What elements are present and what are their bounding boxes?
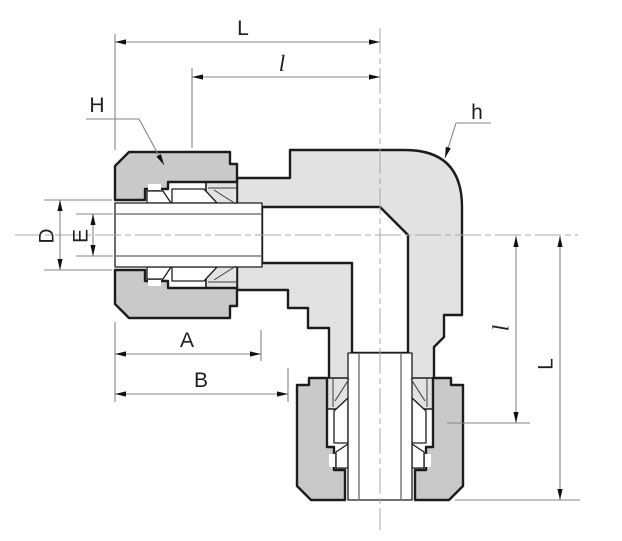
dimension-L-right: L <box>455 236 580 500</box>
arrowhead-bottom <box>90 245 95 256</box>
dimension-A-bottom: A <box>115 322 261 402</box>
dimension-label-l-right: l <box>489 325 514 331</box>
dimension-L-top: L <box>115 17 380 150</box>
arrowhead-bottom <box>57 259 62 270</box>
arrowhead-top <box>557 236 562 247</box>
dimension-label-L-top: L <box>237 17 249 40</box>
arrowhead-left <box>115 39 126 44</box>
dimension-B-bottom: B <box>115 368 288 402</box>
arrowhead-left <box>115 351 126 356</box>
drawing-canvas: L l H h D E <box>0 0 622 541</box>
elbow-fitting-drawing: L l H h D E <box>0 0 622 541</box>
arrowhead-left <box>115 391 126 396</box>
arrowhead-top <box>513 236 518 247</box>
dimension-l-top: l <box>192 51 380 148</box>
dimension-label-B: B <box>194 369 208 392</box>
arrowhead-left <box>192 74 203 79</box>
arrowhead-right <box>369 39 380 44</box>
arrowhead <box>445 147 451 158</box>
arrowhead-bottom <box>513 412 518 423</box>
arrowhead-bottom <box>557 489 562 500</box>
dimension-label-l-top: l <box>279 51 285 76</box>
arrowhead-right <box>369 74 380 79</box>
dimension-label-D: D <box>36 228 59 243</box>
leader-label-H: H <box>89 94 104 117</box>
arrowhead-top <box>90 214 95 225</box>
arrowhead-right <box>250 351 261 356</box>
dimension-label-A: A <box>180 329 194 352</box>
arrowhead-top <box>57 200 62 211</box>
leader-line <box>445 123 491 158</box>
leader-label-h: h <box>471 101 483 124</box>
arrowhead-right <box>277 391 288 396</box>
leader-h: h <box>445 101 491 158</box>
dimension-label-L-right: L <box>535 358 558 370</box>
dimension-label-E: E <box>70 229 93 243</box>
